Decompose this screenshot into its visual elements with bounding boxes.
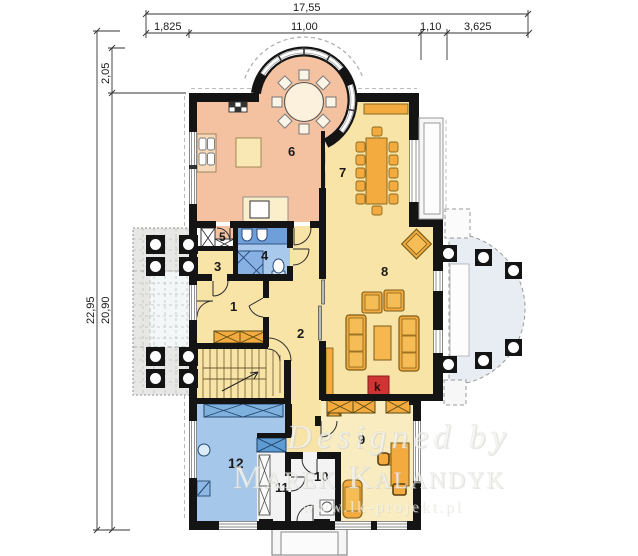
svg-text:3: 3 (214, 259, 221, 274)
svg-text:1,825: 1,825 (154, 21, 182, 33)
svg-text:11,00: 11,00 (291, 21, 318, 33)
svg-text:Designed by: Designed by (286, 419, 511, 456)
svg-text:4: 4 (261, 248, 269, 263)
svg-text:k: k (374, 380, 381, 394)
svg-text:20,90: 20,90 (100, 296, 112, 324)
svg-text:7: 7 (339, 165, 346, 180)
svg-text:3,625: 3,625 (464, 21, 492, 33)
svg-text:22,95: 22,95 (85, 296, 97, 324)
svg-text:8: 8 (381, 264, 388, 279)
svg-text:2,05: 2,05 (100, 63, 112, 84)
svg-text:1: 1 (230, 299, 237, 314)
svg-text:17,55: 17,55 (293, 2, 321, 14)
svg-text:www.lk-projekt.pl: www.lk-projekt.pl (302, 499, 463, 516)
svg-text:2: 2 (297, 326, 304, 341)
svg-text:5: 5 (219, 230, 226, 244)
svg-text:Marek Kalandyk: Marek Kalandyk (233, 460, 506, 496)
svg-text:1,10: 1,10 (420, 21, 441, 33)
svg-text:6: 6 (288, 144, 295, 159)
